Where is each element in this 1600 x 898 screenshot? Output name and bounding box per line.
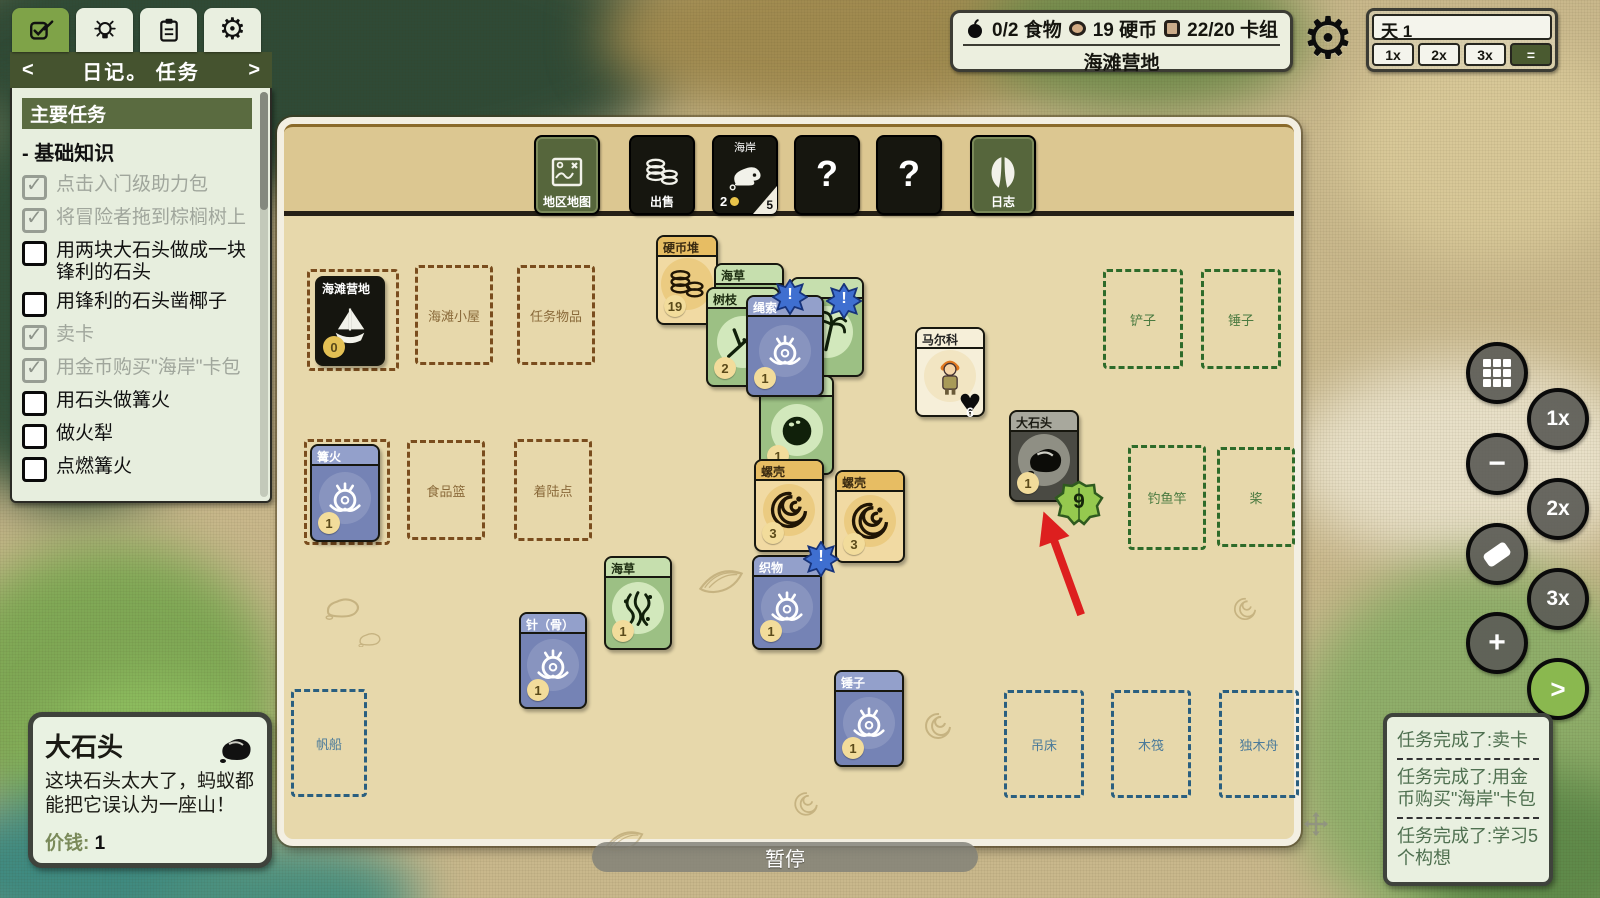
slot-shovel[interactable]: 铲子 xyxy=(1103,269,1183,369)
coin-dot-icon xyxy=(730,197,739,206)
card-title: 大石头 xyxy=(1011,412,1077,432)
checkbox-icon xyxy=(22,391,47,416)
card-title: 螺壳 xyxy=(837,472,903,492)
board-top-strip: 地区地图 出售 海岸 2 5 ? ? 日志 xyxy=(284,124,1294,216)
slot-canoe[interactable]: 独木舟 xyxy=(1219,690,1299,798)
region-map-card[interactable]: 地区地图 xyxy=(534,135,600,215)
sand-shell-doodle xyxy=(696,562,746,596)
zoom-2x-button[interactable]: 2x xyxy=(1527,478,1589,540)
value-badge: 2 xyxy=(714,357,736,379)
task-item: 将冒险者拖到棕榈树上 xyxy=(22,207,254,233)
task-label: 卖卡 xyxy=(56,324,94,346)
task-label: 用两块大石头做成一块锋利的石头 xyxy=(56,240,254,284)
card-campfire-idea[interactable]: 篝火 1 xyxy=(310,444,380,542)
slot-quest-items[interactable]: 任务物品 xyxy=(517,265,595,365)
task-item: 点击入门级助力包 xyxy=(22,174,254,200)
gear-icon: ⚙ xyxy=(219,15,246,45)
card-tooltip: 大石头 这块石头太大了，蚂蚁都能把它误认为一座山！ 价钱: 1 xyxy=(28,712,272,868)
task-scrollbar[interactable] xyxy=(260,92,268,497)
new-idea-star-badge: ! xyxy=(826,283,862,319)
journal-nav-title: 日记。 任务 xyxy=(34,56,249,85)
slot-landing-site[interactable]: 着陆点 xyxy=(514,439,592,541)
value-badge: 1 xyxy=(842,737,864,759)
sand-shell-doodle xyxy=(1228,592,1262,626)
board-move-handle-icon[interactable] xyxy=(1302,810,1330,838)
deck-icon xyxy=(1164,20,1180,37)
slot-sailboat[interactable]: 帆船 xyxy=(291,689,367,797)
coin-icon xyxy=(1069,21,1086,36)
stacklands-game-screen: ⚙ < 日记。 任务 > 主要任务 - 基础知识 点击入门级助力包 将冒险者拖到… xyxy=(0,0,1600,898)
checkbox-icon xyxy=(22,241,47,266)
lightbulb-icon xyxy=(91,16,119,44)
value-badge: 19 xyxy=(664,295,686,317)
card-title: 硬币堆 xyxy=(658,237,716,257)
checkbox-icon xyxy=(22,325,47,350)
checkbox-icon xyxy=(22,457,47,482)
new-idea-star-badge: ! xyxy=(803,541,839,577)
checkbox-icon xyxy=(22,424,47,449)
price-value: 1 xyxy=(95,833,106,854)
grid-snap-button[interactable] xyxy=(1466,342,1528,404)
chevron-right-icon: > xyxy=(1550,676,1565,702)
card-label: 日志 xyxy=(972,193,1034,210)
journal-tabs: ⚙ xyxy=(12,8,272,52)
pack-corner-fold xyxy=(753,186,777,214)
task-label: 将冒险者拖到棕榈树上 xyxy=(56,207,246,229)
card-title: 针（骨） xyxy=(521,614,585,634)
speed-controls: 1x 2x 3x = xyxy=(1372,43,1552,66)
value-badge: 1 xyxy=(527,679,549,701)
task-label: 用石头做篝火 xyxy=(56,390,170,412)
slot-label: 任务物品 xyxy=(530,306,582,325)
slot-beach-hut[interactable]: 海滩小屋 xyxy=(415,265,493,365)
task-item: 卖卡 xyxy=(22,324,254,350)
notification: 任务完成了:学习5个构想 xyxy=(1397,817,1539,876)
task-label: 用锋利的石头凿椰子 xyxy=(56,291,227,313)
card-title: 锤子 xyxy=(836,672,902,692)
journal-prev-button[interactable]: < xyxy=(22,59,34,82)
task-item: 用石头做篝火 xyxy=(22,390,254,416)
wings-icon xyxy=(982,151,1024,193)
zoom-out-button[interactable]: − xyxy=(1466,433,1528,495)
coins-icon xyxy=(641,151,683,193)
slot-label: 海滩小屋 xyxy=(428,306,480,325)
zoom-in-button[interactable]: + xyxy=(1466,612,1528,674)
coin-count: 19 硬币 xyxy=(1093,15,1157,42)
value-badge: 1 xyxy=(760,620,782,642)
task-label: 用金币购买"海岸"卡包 xyxy=(56,357,241,379)
pack-count: 5 xyxy=(766,198,773,212)
status-bar: 0/2 食物 19 硬币 22/20 卡组 海滩营地 xyxy=(950,10,1293,72)
eraser-icon xyxy=(1482,540,1512,567)
card-title: 螺壳 xyxy=(756,461,822,481)
sell-card[interactable]: 出售 xyxy=(629,135,695,215)
journal-nav: < 日记。 任务 > xyxy=(10,52,272,88)
slot-hammer[interactable]: 锤子 xyxy=(1201,269,1281,369)
card-title: 海草 xyxy=(606,558,670,578)
pack-name: 海岸 xyxy=(714,139,776,155)
deck-count: 22/20 卡组 xyxy=(1187,15,1278,42)
sand-shell-doodle xyxy=(918,706,958,746)
food-apple-icon xyxy=(965,19,985,39)
slot-label: 吊床 xyxy=(1031,735,1057,754)
sand-rock-doodle xyxy=(356,629,384,647)
plus-icon: + xyxy=(1488,628,1506,658)
card-shell-a[interactable]: 螺壳 3 xyxy=(754,459,824,552)
task-section-title: - 基础知识 xyxy=(22,137,254,166)
zoom-1x-button[interactable]: 1x xyxy=(1527,388,1589,450)
card-needle-bone-idea[interactable]: 针（骨） 1 xyxy=(519,612,587,709)
tab-settings[interactable]: ⚙ xyxy=(204,8,261,52)
card-label: 出售 xyxy=(631,193,693,210)
locked-pack-2[interactable]: ? xyxy=(876,135,942,215)
value-badge: 1 xyxy=(1017,472,1039,494)
card-marco-villager[interactable]: 马尔科 ♥6 xyxy=(915,327,985,417)
slot-raft[interactable]: 木筏 xyxy=(1111,690,1191,798)
card-beach-camp[interactable]: 海滩营地 0 xyxy=(315,276,385,366)
logbook-card[interactable]: 日志 xyxy=(970,135,1036,215)
new-idea-star-badge: ! xyxy=(772,279,808,315)
task-item: 点燃篝火 xyxy=(22,456,254,482)
sand-shell-doodle xyxy=(788,786,824,822)
tasks-check-icon xyxy=(27,16,55,44)
card-title: 篝火 xyxy=(312,446,378,466)
slot-fishing-rod[interactable]: 钓鱼竿 xyxy=(1128,445,1206,550)
slot-label: 着陆点 xyxy=(533,481,572,500)
card-shell-b[interactable]: 螺壳 3 xyxy=(835,470,905,563)
speed-1x-button[interactable]: 1x xyxy=(1372,43,1414,66)
sand-rock-doodle xyxy=(322,592,364,620)
task-item: 做火犁 xyxy=(22,423,254,449)
value-badge: 3 xyxy=(762,522,784,544)
slot-label: 独木舟 xyxy=(1239,735,1278,754)
slot-label: 帆船 xyxy=(316,734,342,753)
task-list: 主要任务 - 基础知识 点击入门级助力包 将冒险者拖到棕榈树上 用两块大石头做成… xyxy=(10,88,272,503)
task-label: 做火犁 xyxy=(56,423,113,445)
slot-label: 钓鱼竿 xyxy=(1147,488,1186,507)
slot-paddle[interactable]: 桨 xyxy=(1217,447,1295,547)
task-label: 点击入门级助力包 xyxy=(56,174,208,196)
locked-pack-1[interactable]: ? xyxy=(794,135,860,215)
resources-row: 0/2 食物 19 硬币 22/20 卡组 xyxy=(963,15,1280,46)
slot-hammock[interactable]: 吊床 xyxy=(1004,690,1084,798)
location-name: 海滩营地 xyxy=(963,46,1280,75)
speed-pause-button[interactable]: = xyxy=(1510,43,1552,66)
value-badge: 0 xyxy=(323,336,345,358)
next-button[interactable]: > xyxy=(1527,658,1589,720)
slot-label: 桨 xyxy=(1249,488,1262,507)
pause-button[interactable]: 暂停 xyxy=(592,842,978,872)
checkbox-icon xyxy=(22,208,47,233)
slot-label: 铲子 xyxy=(1130,310,1156,329)
journal-panel: ⚙ < 日记。 任务 > 主要任务 - 基础知识 点击入门级助力包 将冒险者拖到… xyxy=(10,8,272,503)
tab-ideas[interactable] xyxy=(76,8,133,52)
task-list-header: 主要任务 xyxy=(22,98,252,129)
checkbox-icon xyxy=(22,292,47,317)
map-icon xyxy=(547,152,587,192)
card-title: 马尔科 xyxy=(917,329,983,349)
speed-3x-button[interactable]: 3x xyxy=(1464,43,1506,66)
journal-next-button[interactable]: > xyxy=(248,59,260,82)
task-item: 用金币购买"海岸"卡包 xyxy=(22,357,254,383)
day-progress-bar: 天 1 xyxy=(1372,14,1552,40)
notifications-panel: 任务完成了:卖卡 任务完成了:用金币购买"海岸"卡包 任务完成了:学习5个构想 xyxy=(1383,713,1553,886)
value-badge: 1 xyxy=(754,367,776,389)
card-title: 海滩营地 xyxy=(317,278,383,298)
minus-icon: − xyxy=(1488,449,1506,479)
rock-icon xyxy=(215,729,255,769)
tooltip-description: 这块石头太大了，蚂蚁都能把它误认为一座山！ xyxy=(45,770,255,818)
slot-label: 木筏 xyxy=(1138,735,1164,754)
value-badge: 1 xyxy=(612,620,634,642)
task-label: 点燃篝火 xyxy=(56,456,132,478)
question-mark-icon: ? xyxy=(878,153,940,195)
slot-label: 食品篮 xyxy=(426,481,465,500)
card-label: 地区地图 xyxy=(536,193,598,210)
tooltip-price: 价钱: 1 xyxy=(45,828,255,855)
tab-tasks[interactable] xyxy=(12,8,69,52)
value-badge: 1 xyxy=(318,512,340,534)
eraser-button[interactable] xyxy=(1466,523,1528,585)
pack-price: 2 xyxy=(720,194,739,209)
zoom-3x-button[interactable]: 3x xyxy=(1527,568,1589,630)
notification: 任务完成了:卖卡 xyxy=(1397,723,1539,758)
game-board: 地区地图 出售 海岸 2 5 ? ? 日志 xyxy=(277,117,1301,846)
health-heart-badge: ♥6 xyxy=(951,385,989,423)
task-item: 用两块大石头做成一块锋利的石头 xyxy=(22,240,254,284)
question-mark-icon: ? xyxy=(796,153,858,195)
checkbox-icon xyxy=(22,175,47,200)
scrollbar-thumb[interactable] xyxy=(260,92,268,210)
tab-cardopedia[interactable] xyxy=(140,8,197,52)
task-item: 用锋利的石头凿椰子 xyxy=(22,291,254,317)
clipboard-icon xyxy=(155,16,183,44)
price-label: 价钱: xyxy=(45,833,89,854)
map-terrain-patch xyxy=(1340,40,1600,260)
card-hammer-idea[interactable]: 锤子 1 xyxy=(834,670,904,767)
slot-label: 锤子 xyxy=(1228,310,1254,329)
food-count: 0/2 食物 xyxy=(992,15,1062,42)
value-badge: 3 xyxy=(843,533,865,555)
speed-2x-button[interactable]: 2x xyxy=(1418,43,1460,66)
coast-booster-pack[interactable]: 海岸 2 5 xyxy=(712,135,778,215)
grid-icon xyxy=(1483,359,1511,387)
checkbox-icon xyxy=(22,358,47,383)
notification: 任务完成了:用金币购买"海岸"卡包 xyxy=(1397,758,1539,817)
gear-icon: ⚙ xyxy=(1302,10,1354,68)
slot-food-basket[interactable]: 食品篮 xyxy=(407,440,485,540)
card-seaweed-front[interactable]: 海草 1 xyxy=(604,556,672,650)
settings-gear-button[interactable]: ⚙ xyxy=(1296,4,1360,74)
time-panel: 天 1 1x 2x 3x = xyxy=(1366,8,1558,72)
